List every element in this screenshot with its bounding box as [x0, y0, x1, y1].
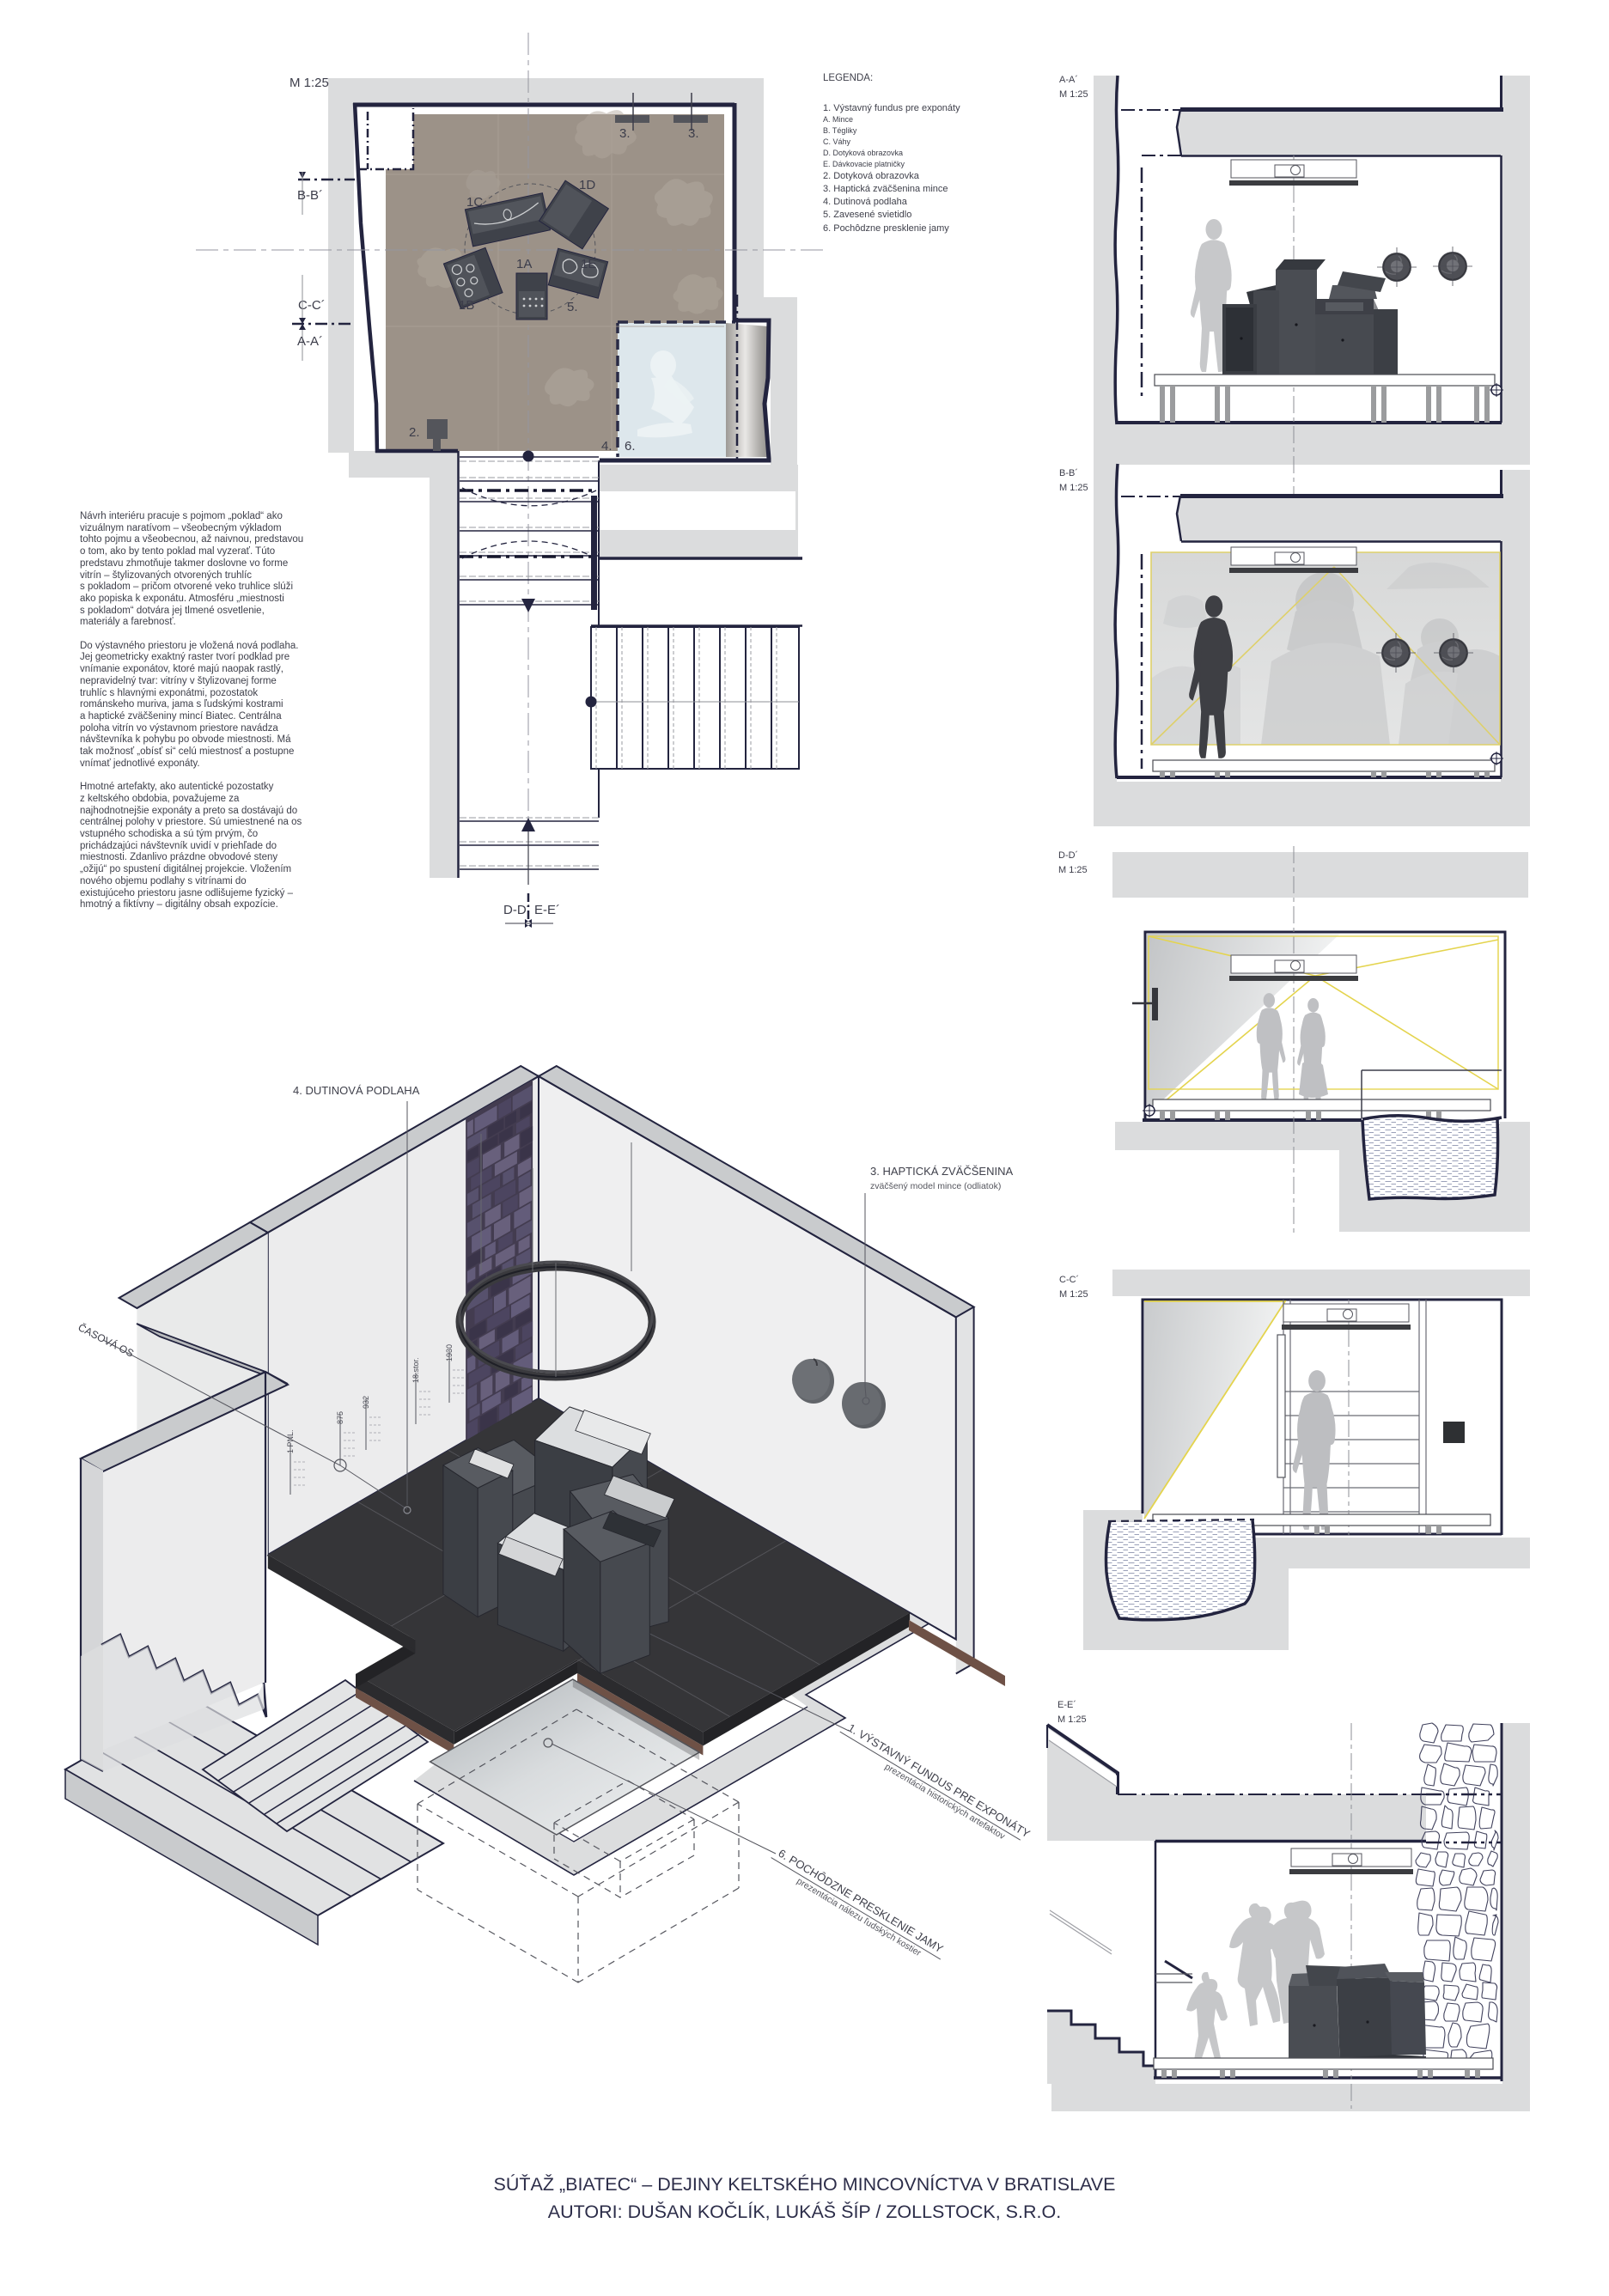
- svg-text:1D: 1D: [579, 178, 595, 192]
- svg-text:1E: 1E: [581, 257, 596, 271]
- svg-text:4. DUTINOVÁ PODLAHA: 4. DUTINOVÁ PODLAHA: [293, 1084, 420, 1097]
- svg-text:6. POCHÔDZNE PRESKLENIE JAMY: 6. POCHÔDZNE PRESKLENIE JAMY: [776, 1847, 945, 1956]
- svg-text:1B: 1B: [459, 298, 474, 313]
- svg-text:875: 875: [336, 1411, 344, 1424]
- svg-text:1930: 1930: [445, 1344, 454, 1361]
- svg-text:18.stor.: 18.stor.: [411, 1357, 420, 1383]
- svg-text:prezentácia historických artef: prezentácia historických artefaktov: [883, 1762, 1008, 1842]
- svg-text:1 PNL.: 1 PNL.: [286, 1429, 295, 1453]
- svg-text:ČASOVÁ OS: ČASOVÁ OS: [76, 1320, 137, 1359]
- svg-text:2.: 2.: [409, 425, 420, 440]
- svg-text:zväčšený model mince (odliatok: zväčšený model mince (odliatok): [870, 1181, 1001, 1191]
- svg-text:1A: 1A: [516, 257, 532, 271]
- svg-text:prezentácia nálezu ľudských ko: prezentácia nálezu ľudských kostier: [795, 1876, 923, 1958]
- svg-text:932: 932: [362, 1396, 370, 1409]
- svg-text:A-A´: A-A´: [297, 334, 323, 349]
- svg-text:3. HAPTICKÁ ZVÄČŠENINA: 3. HAPTICKÁ ZVÄČŠENINA: [870, 1165, 1013, 1178]
- svg-text:D-D´: D-D´: [503, 903, 531, 917]
- svg-text:1C: 1C: [466, 195, 483, 210]
- svg-text:1. VÝSTAVNÝ FUNDUS PRE EXPONÁT: 1. VÝSTAVNÝ FUNDUS PRE EXPONÁTY: [845, 1721, 1033, 1841]
- svg-text:3.: 3.: [688, 126, 699, 141]
- svg-text:E-E´: E-E´: [534, 903, 560, 917]
- svg-text:3.: 3.: [619, 126, 631, 141]
- svg-text:B-B´: B-B´: [297, 188, 323, 203]
- svg-text:6.: 6.: [625, 439, 636, 454]
- svg-text:5.: 5.: [567, 300, 578, 314]
- svg-text:M 1:25: M 1:25: [289, 76, 329, 90]
- svg-text:4.: 4.: [601, 439, 613, 454]
